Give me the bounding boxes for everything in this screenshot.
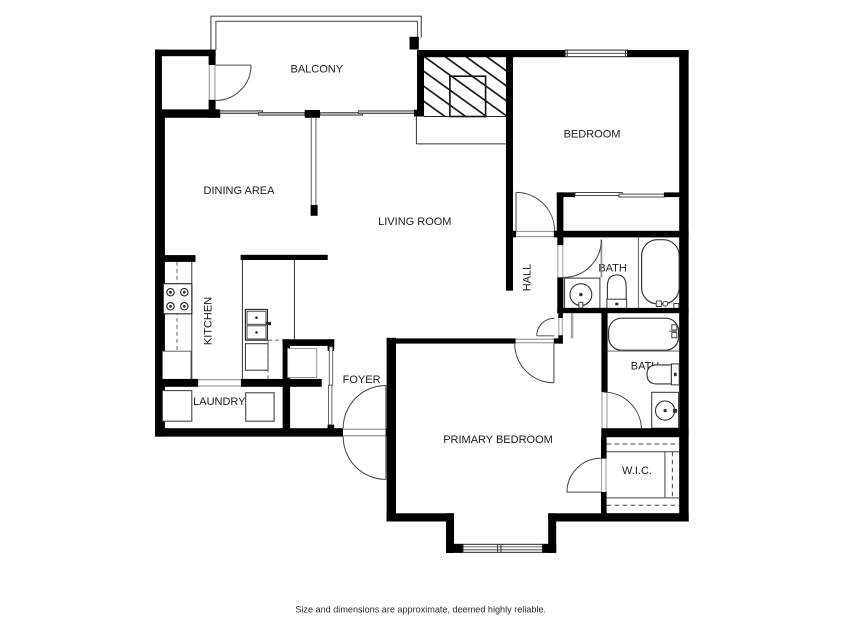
svg-text:LIVING ROOM: LIVING ROOM <box>378 216 451 228</box>
svg-text:FOYER: FOYER <box>343 374 381 386</box>
svg-text:BEDROOM: BEDROOM <box>564 128 621 140</box>
svg-text:LAUNDRY: LAUNDRY <box>193 396 246 408</box>
svg-text:DINING AREA: DINING AREA <box>204 185 276 197</box>
svg-text:PRIMARY BEDROOM: PRIMARY BEDROOM <box>443 434 553 446</box>
svg-text:HALL: HALL <box>522 264 534 292</box>
svg-text:BATH: BATH <box>598 262 627 274</box>
svg-text:BALCONY: BALCONY <box>291 63 344 75</box>
svg-text:Size and dimensions are approx: Size and dimensions are approximate, dee… <box>295 604 546 614</box>
svg-text:KITCHEN: KITCHEN <box>203 297 215 345</box>
svg-text:W.I.C.: W.I.C. <box>622 465 652 477</box>
